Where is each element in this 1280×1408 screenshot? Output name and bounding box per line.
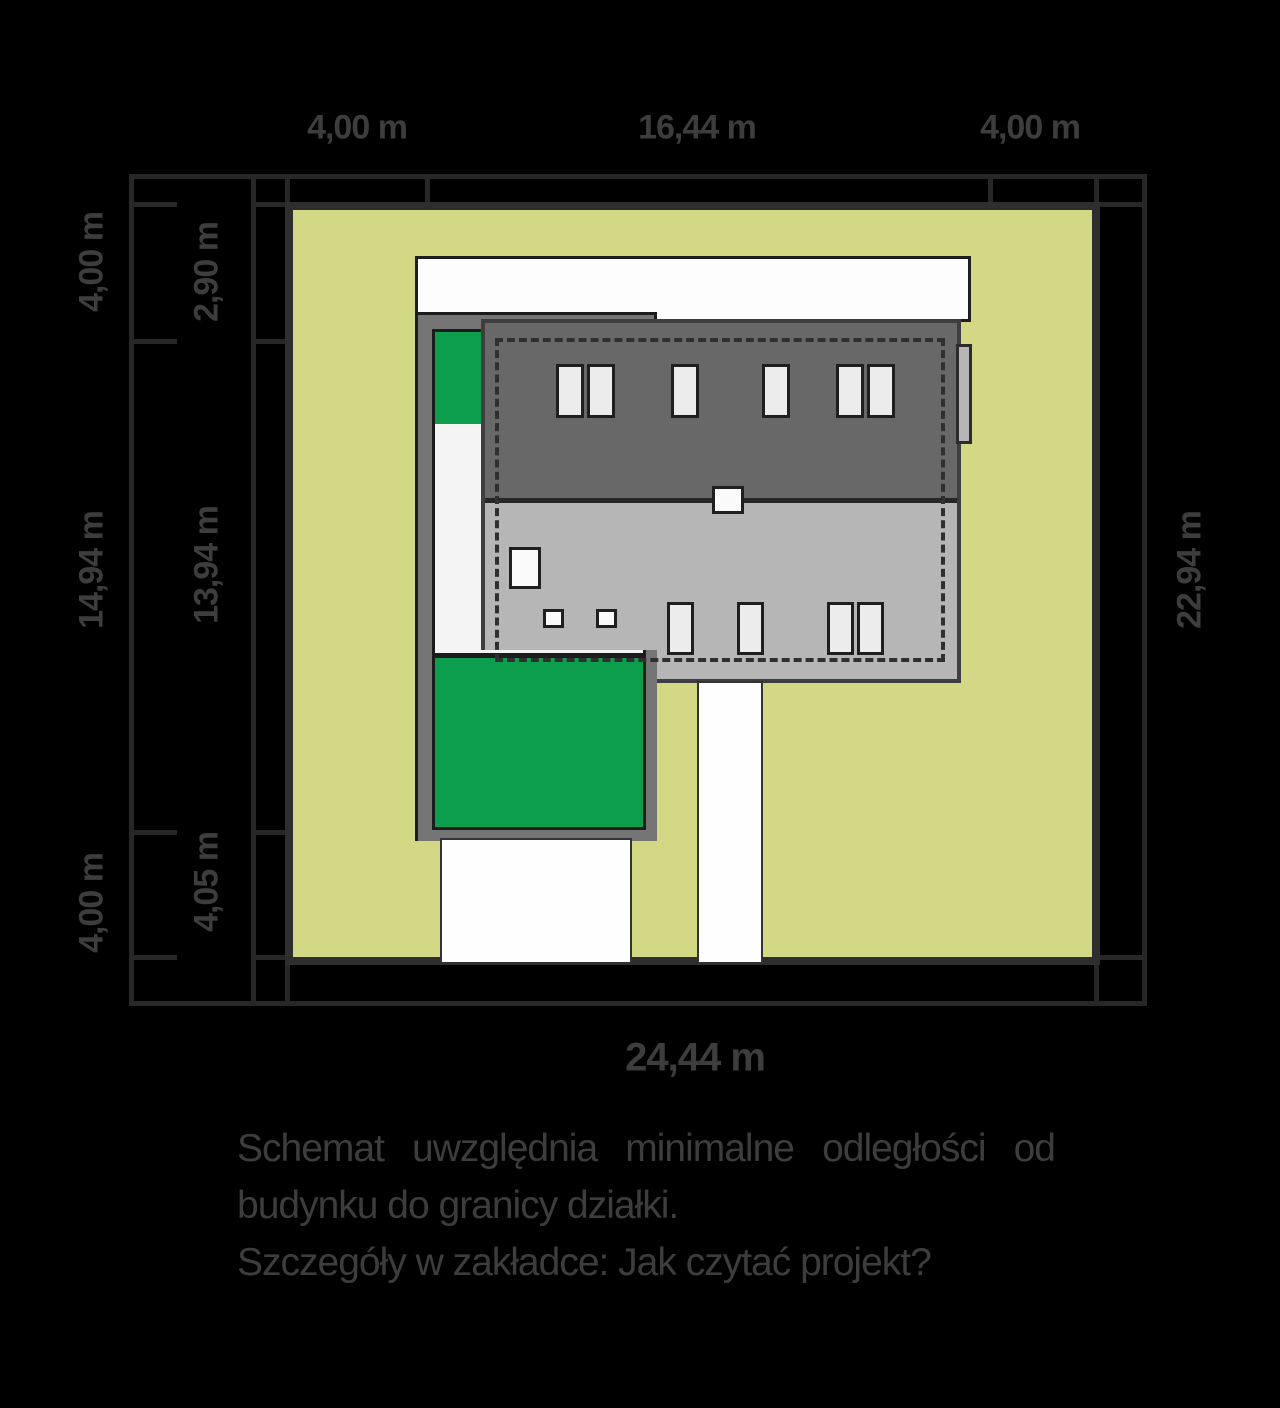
tick xyxy=(988,176,993,205)
driveway xyxy=(440,838,632,964)
vent-small xyxy=(543,609,564,628)
roof-window xyxy=(836,364,864,418)
chimney xyxy=(712,486,744,514)
dim-left-inner-bottom: 4,05 m xyxy=(188,832,227,932)
roof-right-dormer xyxy=(956,344,972,444)
dim-bottom-total: 24,44 m xyxy=(625,1036,765,1081)
note-line-3: Szczegóły w zakładce: Jak czytać projekt… xyxy=(237,1234,1055,1291)
tick xyxy=(1094,960,1099,1005)
site-plan-diagram: 4,00 m 16,44 m 4,00 m 4,00 m 14,94 m 4,0… xyxy=(0,0,1280,1408)
roof-window xyxy=(556,364,584,418)
roof-window xyxy=(737,602,764,655)
tick xyxy=(253,830,289,835)
dim-top-right: 4,00 m xyxy=(980,109,1080,148)
tick xyxy=(253,202,289,207)
roof-window xyxy=(762,364,790,418)
tick xyxy=(131,202,177,207)
roof-window xyxy=(667,602,694,655)
note-line-1: Schemat uwzględnia minimalne odległości … xyxy=(237,1120,1055,1177)
footprint-overlay xyxy=(415,650,657,841)
tick xyxy=(253,339,289,344)
dim-left-inner-mid: 13,94 m xyxy=(188,506,227,624)
dim-left-outer-top: 4,00 m xyxy=(73,212,112,312)
tick xyxy=(131,339,177,344)
tick xyxy=(285,176,290,205)
dimension-line-right xyxy=(1142,174,1147,1006)
vent-small xyxy=(596,609,617,628)
tick xyxy=(1098,955,1146,960)
dim-left-outer-mid: 14,94 m xyxy=(73,511,112,629)
tick xyxy=(1098,202,1146,207)
walkway xyxy=(697,681,763,964)
dimension-line-left-inner xyxy=(251,174,256,1006)
dimension-line-top xyxy=(129,174,1147,179)
footprint-interior-lower xyxy=(432,650,646,830)
note-text: Schemat uwzględnia minimalne odległości … xyxy=(237,1120,1055,1291)
tick xyxy=(131,830,177,835)
tick xyxy=(425,176,430,205)
roof-window xyxy=(827,602,854,655)
roof-window xyxy=(587,364,615,418)
tick xyxy=(131,955,177,960)
dim-left-outer-bottom: 4,00 m xyxy=(73,853,112,953)
roof-window xyxy=(857,602,884,655)
note-line-2: budynku do granicy działki. xyxy=(237,1177,1055,1234)
dimension-line-left-outer xyxy=(129,174,134,1006)
tick xyxy=(1094,176,1099,205)
dimension-line-bottom xyxy=(129,1001,1147,1006)
roof-window xyxy=(867,364,895,418)
dim-top-left: 4,00 m xyxy=(307,109,407,148)
tick xyxy=(285,960,290,1005)
house-footprint-lower xyxy=(415,650,657,841)
dim-right-total: 22,94 m xyxy=(1171,511,1210,629)
dim-top-center: 16,44 m xyxy=(638,109,756,148)
dim-left-inner-top: 2,90 m xyxy=(188,222,227,322)
roof-window xyxy=(671,364,699,418)
roof-hatch xyxy=(509,547,541,589)
garden-band-bottom-copy xyxy=(435,658,643,827)
tick xyxy=(253,955,289,960)
